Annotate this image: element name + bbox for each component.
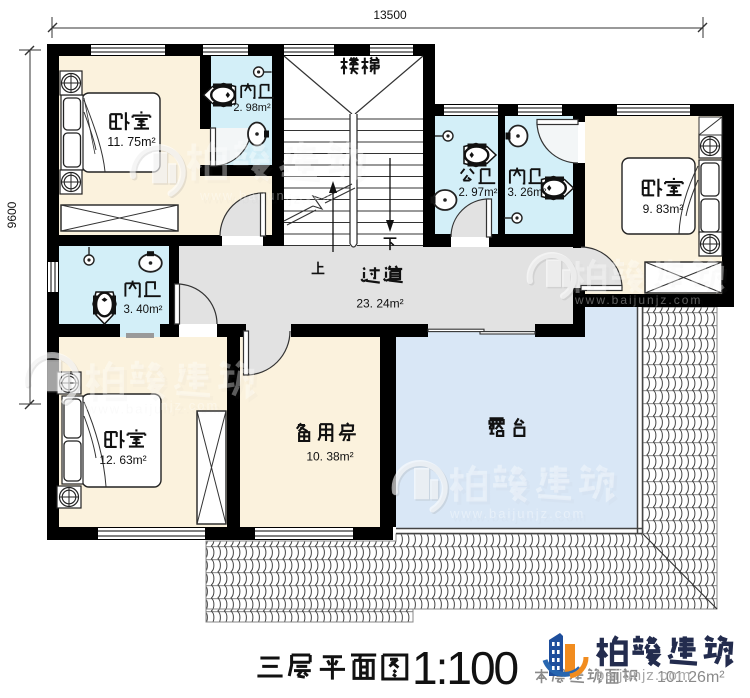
svg-text:3. 40m²: 3. 40m² <box>124 304 163 316</box>
svg-text:9600: 9600 <box>5 201 19 228</box>
svg-text:www.baijunjz.com: www.baijunjz.com <box>449 506 585 521</box>
svg-text:9. 83m²: 9. 83m² <box>643 202 684 216</box>
svg-text:3. 26m²: 3. 26m² <box>508 187 547 199</box>
svg-text:11. 75m²: 11. 75m² <box>107 135 155 149</box>
svg-text:23. 24m²: 23. 24m² <box>356 296 403 310</box>
svg-text:baijunjz.com: baijunjz.com <box>596 667 691 684</box>
svg-text:10. 38m²: 10. 38m² <box>306 449 353 463</box>
svg-text:13500: 13500 <box>373 8 407 22</box>
svg-text:www.baijunjz.com: www.baijunjz.com <box>574 293 702 307</box>
svg-text:www.baijunjz.com: www.baijunjz.com <box>83 398 219 413</box>
svg-text:12. 63m²: 12. 63m² <box>99 453 146 467</box>
svg-text:1:100: 1:100 <box>412 642 518 694</box>
svg-text:2. 98m²: 2. 98m² <box>233 102 271 114</box>
svg-text:2. 97m²: 2. 97m² <box>459 187 498 199</box>
svg-text:www.baijunjz.com: www.baijunjz.com <box>199 188 335 203</box>
